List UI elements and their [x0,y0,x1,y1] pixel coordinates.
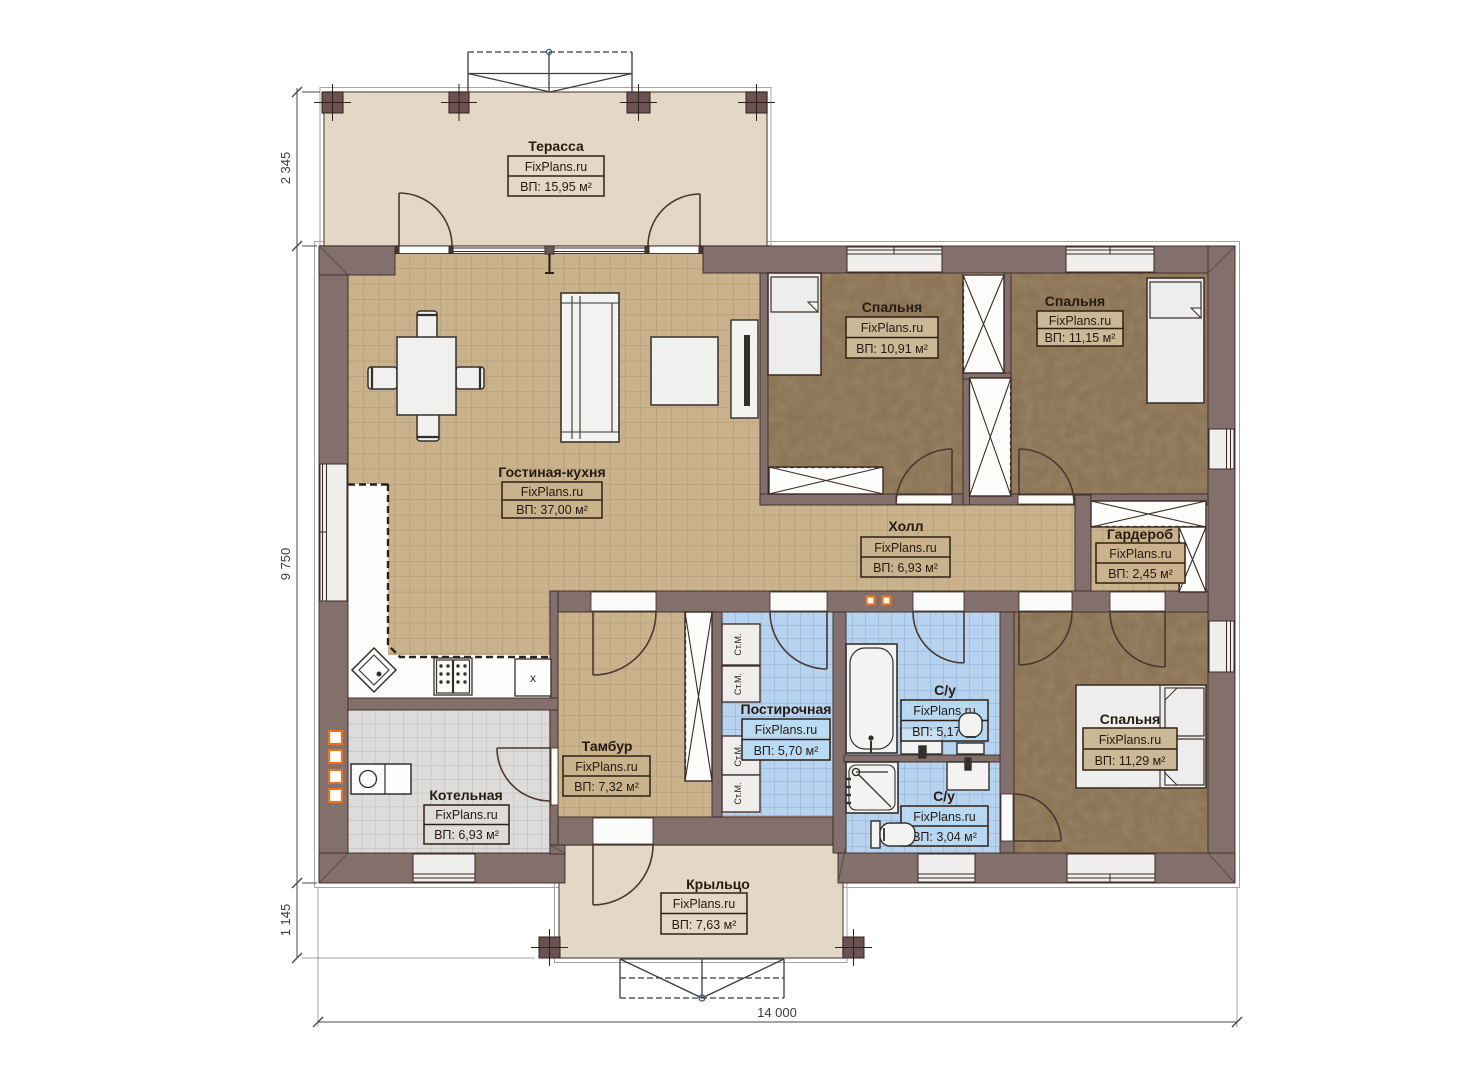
svg-text:Спальня: Спальня [862,299,922,315]
svg-text:FixPlans.ru: FixPlans.ru [673,897,736,911]
svg-text:FixPlans.ru: FixPlans.ru [913,810,976,824]
svg-text:ВП: 15,95 м²: ВП: 15,95 м² [520,180,592,194]
svg-text:ВП: 10,91 м²: ВП: 10,91 м² [856,342,928,356]
svg-text:Ст.М.: Ст.М. [733,673,743,695]
svg-text:Постирочная: Постирочная [741,701,832,717]
svg-text:FixPlans.ru: FixPlans.ru [1099,733,1162,747]
svg-text:Терасса: Терасса [528,138,584,154]
svg-text:Тамбур: Тамбур [582,738,633,754]
svg-text:FixPlans.ru: FixPlans.ru [1109,547,1172,561]
svg-text:FixPlans.ru: FixPlans.ru [1049,314,1112,328]
svg-text:FixPlans.ru: FixPlans.ru [521,485,584,499]
svg-text:FixPlans.ru: FixPlans.ru [435,808,498,822]
svg-text:ВП: 11,29 м²: ВП: 11,29 м² [1095,754,1166,768]
svg-text:Ст.М.: Ст.М. [733,633,743,655]
svg-text:ВП: 3,04 м²: ВП: 3,04 м² [912,830,977,844]
svg-text:Спальня: Спальня [1045,293,1105,309]
svg-text:FixPlans.ru: FixPlans.ru [874,541,937,555]
svg-text:1 145: 1 145 [278,904,293,937]
svg-text:ВП: 11,15 м²: ВП: 11,15 м² [1045,331,1116,345]
svg-text:С/у: С/у [933,788,955,804]
svg-text:Гардероб: Гардероб [1107,526,1174,542]
svg-text:FixPlans.ru: FixPlans.ru [755,723,818,737]
svg-text:2 345: 2 345 [278,152,293,185]
svg-text:С/у: С/у [934,682,956,698]
svg-text:FixPlans.ru: FixPlans.ru [525,160,588,174]
svg-text:Котельная: Котельная [429,787,502,803]
svg-text:FixPlans.ru: FixPlans.ru [861,321,924,335]
svg-text:Крыльцо: Крыльцо [686,876,750,892]
svg-text:ВП: 6,93 м²: ВП: 6,93 м² [873,561,938,575]
svg-text:x: x [530,671,536,685]
svg-text:ВП: 7,32 м²: ВП: 7,32 м² [574,780,639,794]
svg-text:Холл: Холл [888,518,923,534]
svg-text:9 750: 9 750 [278,548,293,581]
svg-text:ВП: 37,00 м²: ВП: 37,00 м² [516,503,588,517]
svg-text:ВП: 7,63 м²: ВП: 7,63 м² [672,918,737,932]
svg-text:Спальня: Спальня [1100,711,1160,727]
svg-text:Ст.М.: Ст.М. [733,782,743,804]
svg-text:ВП: 6,93 м²: ВП: 6,93 м² [434,828,499,842]
svg-text:ВП: 5,70 м²: ВП: 5,70 м² [754,744,819,758]
svg-text:Гостиная-кухня: Гостиная-кухня [498,464,605,480]
svg-text:ВП: 2,45 м²: ВП: 2,45 м² [1108,567,1173,581]
svg-text:14 000: 14 000 [757,1005,797,1020]
svg-text:FixPlans.ru: FixPlans.ru [575,760,638,774]
